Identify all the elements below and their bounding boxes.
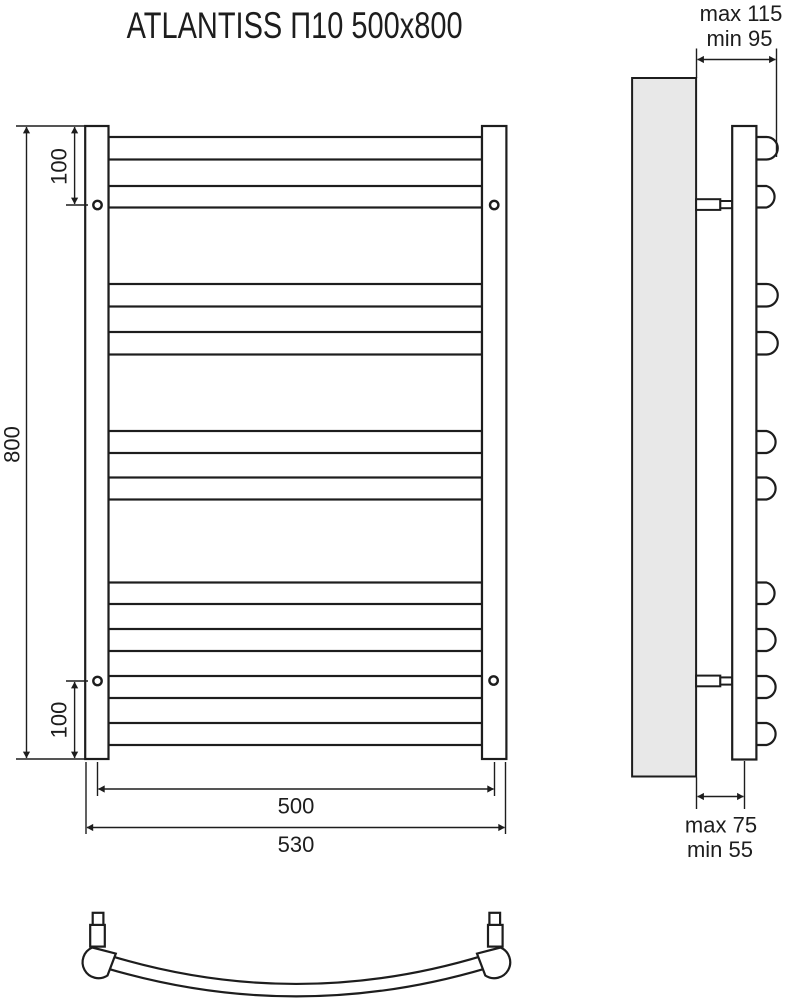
svg-text:500: 500 — [278, 794, 315, 819]
svg-text:ATLANTISS П10 500x800: ATLANTISS П10 500x800 — [127, 5, 463, 46]
svg-text:max 75: max 75 — [685, 813, 757, 838]
svg-text:min 55: min 55 — [687, 837, 753, 862]
svg-text:100: 100 — [47, 148, 72, 185]
svg-text:800: 800 — [0, 426, 25, 463]
svg-text:max 115: max 115 — [700, 1, 783, 26]
svg-text:min 95: min 95 — [706, 26, 772, 51]
svg-text:100: 100 — [47, 702, 72, 739]
svg-text:530: 530 — [278, 832, 315, 857]
